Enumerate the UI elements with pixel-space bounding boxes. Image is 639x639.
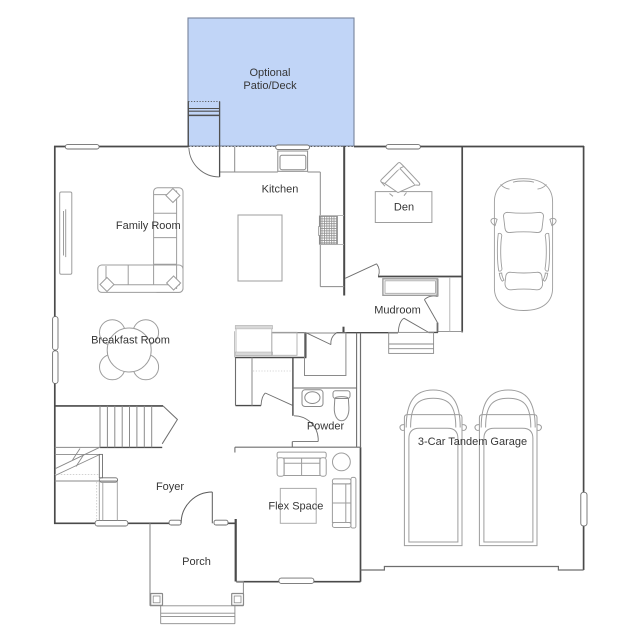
svg-text:Mudroom: Mudroom (374, 305, 420, 317)
svg-text:Foyer: Foyer (156, 481, 184, 493)
svg-text:Breakfast Room: Breakfast Room (91, 334, 170, 346)
svg-text:Porch: Porch (182, 556, 211, 568)
svg-text:Kitchen: Kitchen (262, 184, 299, 196)
svg-text:3-Car Tandem Garage: 3-Car Tandem Garage (418, 436, 527, 448)
svg-text:Den: Den (394, 202, 414, 214)
svg-text:Patio/Deck: Patio/Deck (243, 80, 297, 92)
svg-text:Flex Space: Flex Space (268, 501, 323, 513)
svg-text:Family Room: Family Room (116, 220, 181, 232)
svg-text:Powder: Powder (307, 420, 345, 432)
svg-text:Optional: Optional (250, 67, 291, 79)
